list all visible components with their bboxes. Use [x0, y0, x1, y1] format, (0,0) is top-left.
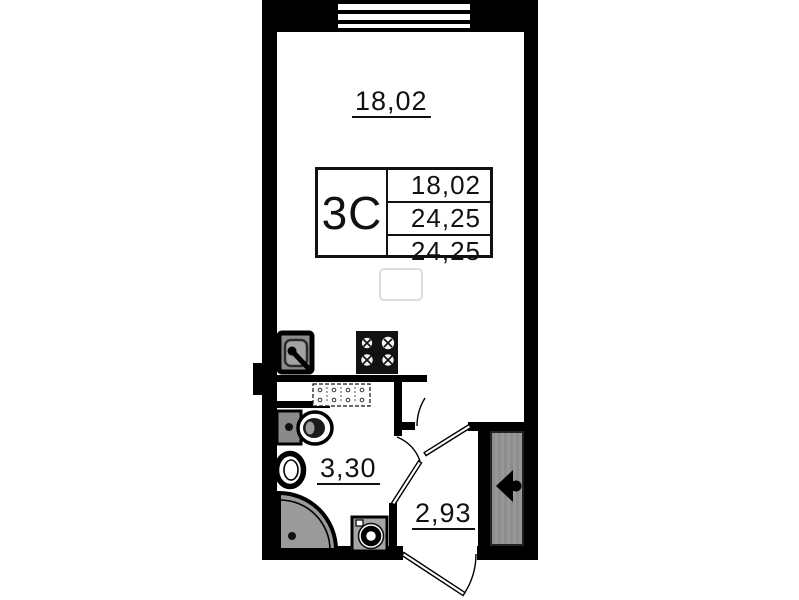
area-row: 24,25 [388, 234, 490, 267]
ventilation-duct-icon [313, 384, 370, 406]
bathroom-door [391, 437, 421, 505]
main-room-door [417, 398, 471, 456]
hallway-area-label: 2,93 [412, 499, 475, 530]
area-row: 24,25 [388, 201, 490, 234]
area-row: 18,02 [388, 170, 490, 201]
area-values-column: 18,02 24,25 24,25 [388, 170, 490, 255]
main-room-area-label: 18,02 [352, 87, 431, 118]
shower-icon [279, 493, 336, 550]
entry-arrow-icon [496, 470, 522, 502]
entry-door [402, 552, 476, 595]
washbasin-icon [277, 454, 304, 487]
washing-machine-icon [352, 517, 387, 551]
plan-canvas: 18,02 3,30 2,93 3С 18,02 24,25 24,25 [0, 0, 799, 600]
kitchen-sink-icon [279, 333, 312, 372]
area-table: 3С 18,02 24,25 24,25 [315, 167, 493, 258]
bathroom-area-label: 3,30 [317, 454, 380, 485]
stove-icon [356, 331, 398, 374]
toilet-icon [277, 411, 332, 444]
apartment-type-cell: 3С [318, 170, 388, 255]
